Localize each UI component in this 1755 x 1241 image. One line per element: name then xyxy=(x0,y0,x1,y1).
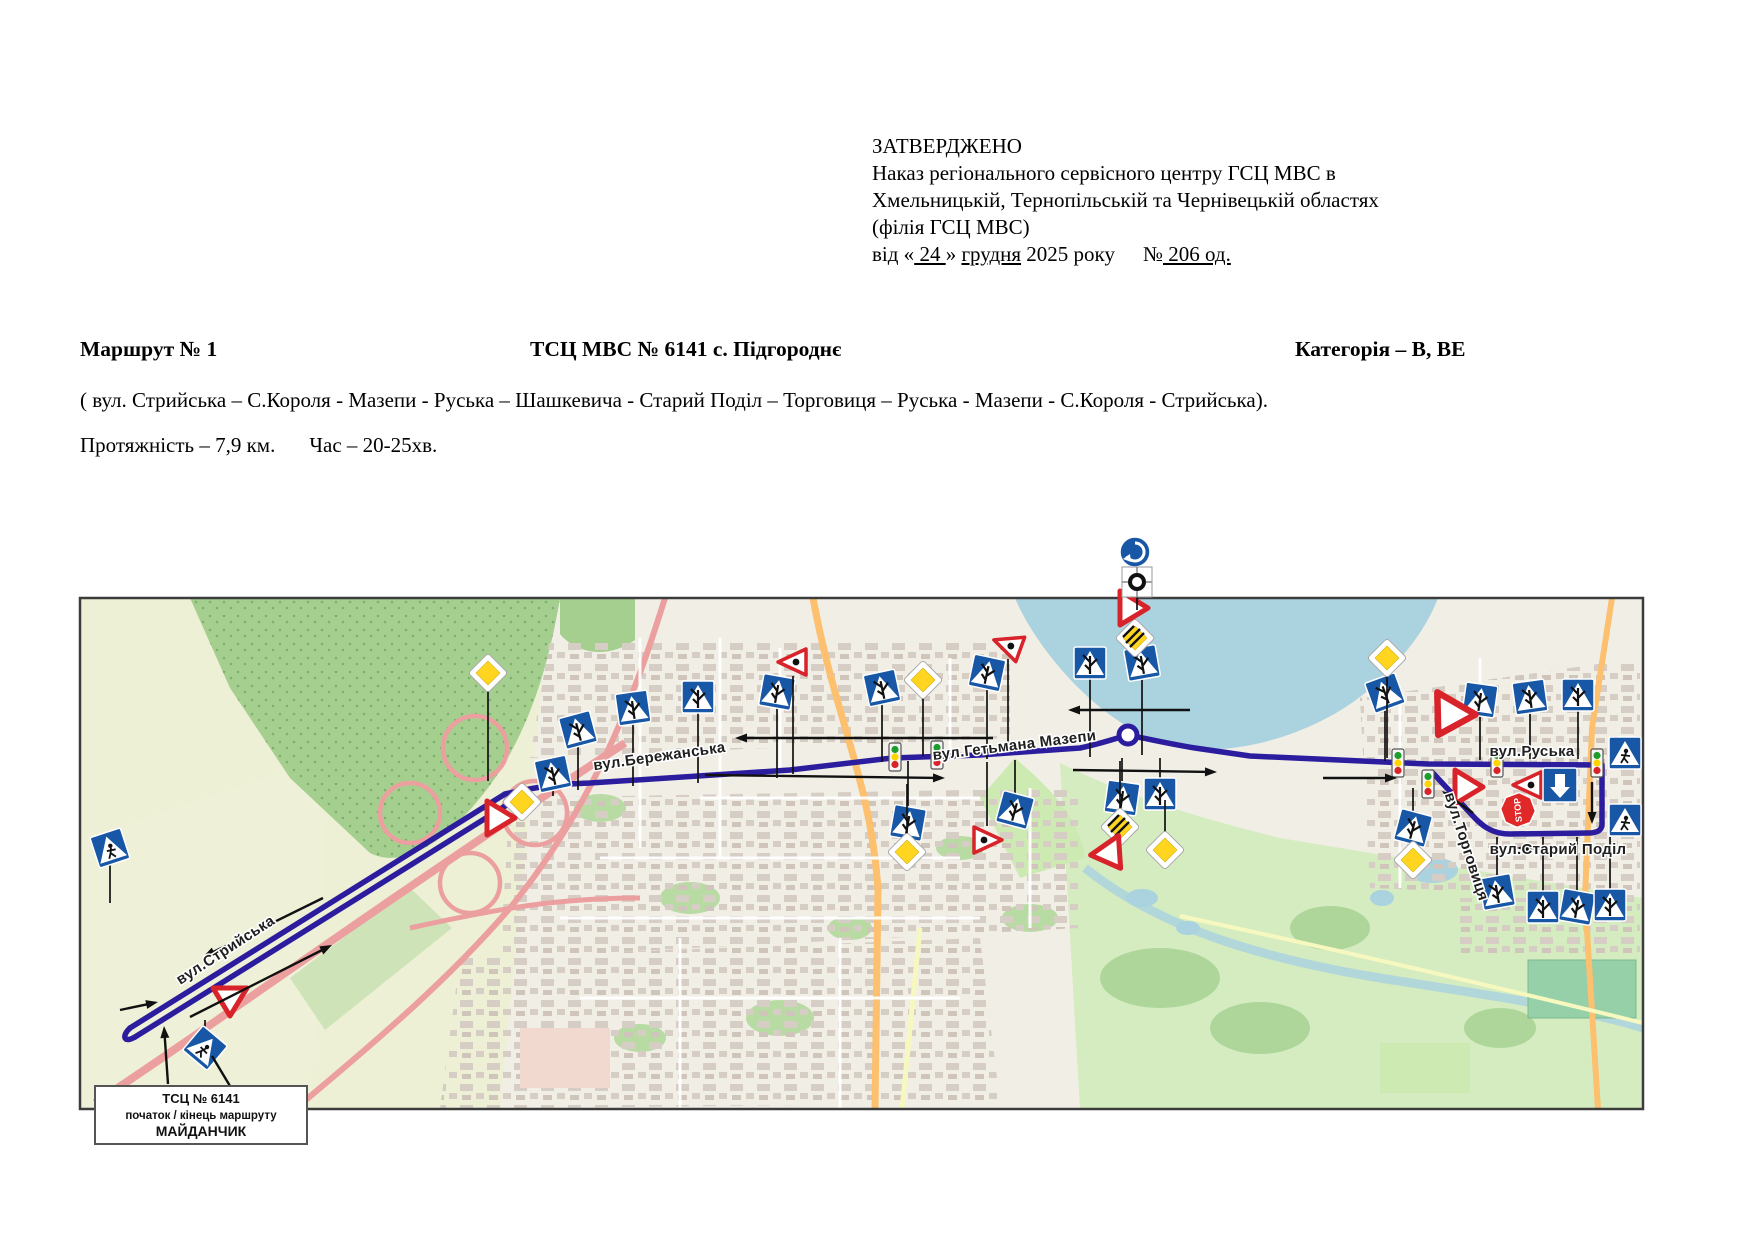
svg-text:STOP: STOP xyxy=(1512,797,1524,822)
sign-tlight-icon xyxy=(889,743,901,771)
sign-ped-icon xyxy=(1609,737,1641,769)
route-map-svg: STOP вул.Стрийськавул.Бережанськавул.Гет… xyxy=(80,478,1645,1158)
route-map: STOP вул.Стрийськавул.Бережанськавул.Гет… xyxy=(80,478,1645,1158)
start-box: ТСЦ № 6141початок / кінець маршрутуМАЙДА… xyxy=(95,1086,307,1144)
category-label: Категорія – В, ВЕ xyxy=(1295,337,1465,362)
route-length: Протяжність – 7,9 км. xyxy=(80,433,275,457)
approval-block: ЗАТВЕРДЖЕНО Наказ регіонального сервісно… xyxy=(872,133,1379,268)
street-label: вул.Руська xyxy=(1489,743,1574,760)
approval-line-4: (філія ГСЦ МВС) xyxy=(872,214,1379,241)
route-number: Маршрут № 1 xyxy=(80,337,217,362)
sign-ped-icon xyxy=(1609,804,1641,836)
approval-line-2: Наказ регіонального сервісного центру ГС… xyxy=(872,160,1379,187)
sign-oneway-icon xyxy=(1543,768,1577,802)
document-page: { "approval": { "l1": "ЗАТВЕРДЖЕНО", "l2… xyxy=(0,0,1755,1241)
route-time: Час – 20-25хв. xyxy=(309,433,437,457)
street-label: вул.Старий Поділ xyxy=(1490,841,1627,858)
sign-tlight-icon xyxy=(1422,770,1434,798)
approval-line-3: Хмельницькій, Тернопільській та Чернівец… xyxy=(872,187,1379,214)
route-stats: Протяжність – 7,9 км.Час – 20-25хв. xyxy=(80,433,437,458)
order-number: 206 од. xyxy=(1163,242,1231,266)
sign-tlight-icon xyxy=(1392,749,1404,777)
tsc-title: ТСЦ МВС № 6141 с. Підгороднє xyxy=(530,337,841,362)
route-description: ( вул. Стрийська – С.Короля - Мазепи - Р… xyxy=(80,388,1268,413)
start-box-line1: ТСЦ № 6141 xyxy=(162,1091,239,1106)
order-day: 24 xyxy=(914,242,946,266)
start-box-line3: МАЙДАНЧИК xyxy=(156,1122,247,1139)
sign-ring_route-icon xyxy=(1119,726,1137,744)
order-month: грудня xyxy=(961,242,1021,266)
approval-line-5: від « 24 » грудня 2025 року№ 206 од. xyxy=(872,241,1379,268)
sign-rsign-icon xyxy=(1120,537,1150,567)
route-header-row: Маршрут № 1 ТСЦ МВС № 6141 с. Підгороднє… xyxy=(0,337,1755,367)
approval-line-1: ЗАТВЕРДЖЕНО xyxy=(872,133,1379,160)
sign-tlight-icon xyxy=(1591,749,1603,777)
start-box-line2: початок / кінець маршруту xyxy=(125,1110,277,1122)
